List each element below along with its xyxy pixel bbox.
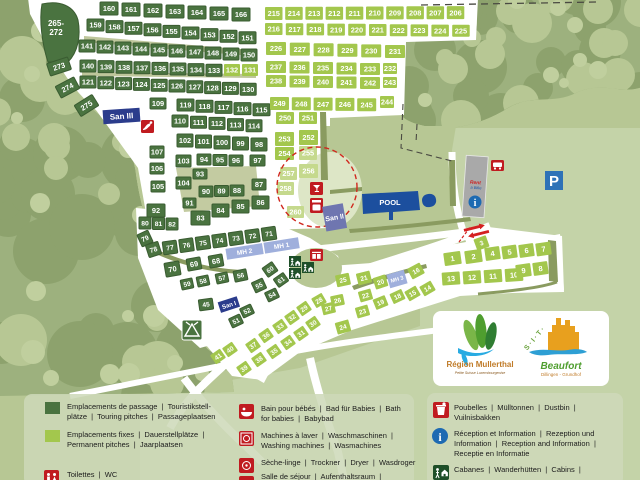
svg-text:101: 101 <box>197 137 209 146</box>
svg-text:119: 119 <box>180 101 192 110</box>
svg-text:72: 72 <box>248 233 257 241</box>
svg-text:124: 124 <box>135 80 148 89</box>
svg-text:45: 45 <box>202 301 211 309</box>
svg-text:92: 92 <box>152 206 160 215</box>
svg-text:260: 260 <box>289 208 301 217</box>
svg-text:220: 220 <box>351 25 363 34</box>
svg-text:89: 89 <box>217 187 225 196</box>
svg-text:129: 129 <box>224 84 236 93</box>
svg-text:for babies | Babybad: for babies | Babybad <box>261 414 334 423</box>
svg-text:229: 229 <box>341 46 353 55</box>
svg-text:243: 243 <box>384 78 396 87</box>
svg-text:Emplacements de passage | To: Emplacements de passage | Touristikstell… <box>67 402 211 411</box>
svg-text:238: 238 <box>270 77 282 86</box>
svg-text:218: 218 <box>309 25 321 34</box>
svg-text:136: 136 <box>154 64 166 73</box>
svg-text:Emplacements fixes | Dauerst: Emplacements fixes | Dauerstellplätze | <box>67 430 204 439</box>
svg-text:93: 93 <box>196 170 204 179</box>
svg-text:245: 245 <box>361 100 373 109</box>
svg-text:272: 272 <box>49 28 63 37</box>
svg-text:143: 143 <box>117 44 129 53</box>
svg-text:137: 137 <box>136 63 148 72</box>
svg-text:160: 160 <box>103 4 115 13</box>
svg-text:144: 144 <box>135 45 148 54</box>
svg-text:153: 153 <box>203 30 215 39</box>
svg-text:84: 84 <box>216 206 225 215</box>
svg-text:135: 135 <box>172 65 184 74</box>
svg-text:163: 163 <box>169 7 181 16</box>
svg-text:130: 130 <box>242 85 254 94</box>
svg-text:139: 139 <box>100 62 112 71</box>
svg-text:152: 152 <box>222 32 234 41</box>
svg-text:95: 95 <box>216 156 224 165</box>
svg-text:83: 83 <box>196 214 204 223</box>
svg-text:Région Mullerthal: Région Mullerthal <box>446 360 513 369</box>
svg-text:252: 252 <box>302 133 314 142</box>
svg-text:132: 132 <box>226 66 238 75</box>
svg-text:109: 109 <box>152 99 164 108</box>
svg-text:250: 250 <box>279 114 291 123</box>
svg-text:154: 154 <box>184 29 197 38</box>
svg-text:82: 82 <box>168 221 176 228</box>
svg-text:148: 148 <box>207 49 219 58</box>
svg-text:208: 208 <box>409 8 421 17</box>
svg-text:115: 115 <box>256 105 268 114</box>
svg-text:76: 76 <box>182 242 191 250</box>
svg-text:125: 125 <box>153 81 165 90</box>
svg-text:73: 73 <box>232 235 241 243</box>
svg-text:99: 99 <box>236 139 244 148</box>
svg-text:13: 13 <box>447 274 456 284</box>
svg-text:209: 209 <box>389 9 401 18</box>
svg-text:100: 100 <box>216 138 228 147</box>
svg-text:112: 112 <box>211 119 223 128</box>
svg-text:207: 207 <box>429 8 441 17</box>
svg-text:225: 225 <box>455 26 467 35</box>
svg-text:236: 236 <box>293 63 305 72</box>
svg-text:107: 107 <box>151 148 163 157</box>
svg-text:Permanent pitches | Jaarplaa: Permanent pitches | Jaarplaatsen <box>67 440 183 449</box>
svg-text:241: 241 <box>340 78 352 87</box>
svg-text:161: 161 <box>125 5 137 14</box>
svg-text:145: 145 <box>153 46 165 55</box>
svg-text:223: 223 <box>413 26 425 35</box>
svg-text:158: 158 <box>108 22 120 31</box>
svg-text:Dillingen - Grundhof: Dillingen - Grundhof <box>541 372 582 377</box>
svg-text:150: 150 <box>243 51 255 60</box>
svg-text:217: 217 <box>288 25 300 34</box>
svg-text:138: 138 <box>118 63 130 72</box>
svg-text:141: 141 <box>81 42 93 51</box>
svg-text:74: 74 <box>215 238 224 246</box>
svg-text:Poubelles | Mülltonnen | D: Poubelles | Mülltonnen | Dustbin | <box>454 403 576 412</box>
svg-text:222: 222 <box>392 26 404 35</box>
svg-text:219: 219 <box>330 25 342 34</box>
svg-text:117: 117 <box>218 103 230 112</box>
svg-text:87: 87 <box>255 180 263 189</box>
svg-text:103: 103 <box>177 157 189 166</box>
svg-text:Cabanes | Wanderhütten | C: Cabanes | Wanderhütten | Cabins | <box>454 465 581 474</box>
svg-text:80: 80 <box>141 220 149 227</box>
svg-text:151: 151 <box>241 33 253 42</box>
svg-text:147: 147 <box>189 48 201 57</box>
svg-text:Sèche-linge | Trockner | D: Sèche-linge | Trockner | Dryer | Wasdrog… <box>261 458 416 467</box>
svg-text:116: 116 <box>237 104 249 113</box>
svg-text:214: 214 <box>288 9 301 18</box>
svg-text:249: 249 <box>273 99 285 108</box>
svg-text:258: 258 <box>279 184 291 193</box>
svg-text:96: 96 <box>232 156 240 165</box>
svg-text:213: 213 <box>308 9 320 18</box>
svg-text:244: 244 <box>381 98 394 107</box>
svg-text:12: 12 <box>468 273 477 283</box>
svg-text:San III: San III <box>109 111 133 122</box>
svg-text:251: 251 <box>302 114 314 123</box>
svg-text:253: 253 <box>278 135 290 144</box>
svg-text:235: 235 <box>317 64 329 73</box>
svg-text:247: 247 <box>317 100 329 109</box>
svg-text:126: 126 <box>171 82 183 91</box>
svg-text:164: 164 <box>191 8 204 17</box>
svg-text:215: 215 <box>268 9 280 18</box>
svg-text:216: 216 <box>268 25 280 34</box>
svg-text:118: 118 <box>199 102 211 111</box>
svg-text:68: 68 <box>211 256 221 266</box>
svg-text:102: 102 <box>179 136 191 145</box>
svg-text:133: 133 <box>208 66 220 75</box>
svg-text:106: 106 <box>151 164 163 173</box>
svg-text:Beaufort: Beaufort <box>540 361 582 372</box>
svg-text:71: 71 <box>265 231 274 239</box>
svg-text:105: 105 <box>152 182 164 191</box>
svg-text:91: 91 <box>185 199 193 208</box>
svg-text:131: 131 <box>244 66 256 75</box>
svg-text:P: P <box>549 173 559 190</box>
svg-text:228: 228 <box>317 45 329 54</box>
svg-text:81: 81 <box>155 221 163 228</box>
svg-text:98: 98 <box>255 140 263 149</box>
svg-text:239: 239 <box>293 77 305 86</box>
svg-text:113: 113 <box>230 120 242 129</box>
svg-text:POOL: POOL <box>379 198 401 207</box>
svg-text:Receptie en Informatie: Receptie en Informatie <box>454 449 529 458</box>
svg-text:240: 240 <box>317 78 329 87</box>
svg-text:162: 162 <box>147 6 159 15</box>
svg-text:123: 123 <box>117 79 129 88</box>
svg-text:94: 94 <box>200 155 209 164</box>
svg-text:233: 233 <box>364 65 376 74</box>
svg-text:a Bike: a Bike <box>470 185 482 191</box>
svg-text:128: 128 <box>206 83 218 92</box>
svg-text:77: 77 <box>166 244 175 252</box>
svg-text:75: 75 <box>199 240 208 248</box>
svg-text:227: 227 <box>294 45 306 54</box>
svg-text:86: 86 <box>256 198 264 207</box>
svg-text:206: 206 <box>449 8 461 17</box>
svg-text:Petite Suisse Luxembourgeoise: Petite Suisse Luxembourgeoise <box>455 371 506 375</box>
svg-text:232: 232 <box>384 64 396 73</box>
svg-text:157: 157 <box>127 24 139 33</box>
svg-text:i: i <box>474 198 477 209</box>
svg-text:70: 70 <box>168 264 178 274</box>
svg-text:Machines à laver | Waschmasc: Machines à laver | Waschmaschinen | <box>261 431 393 440</box>
svg-text:140: 140 <box>82 62 94 71</box>
svg-text:212: 212 <box>328 9 340 18</box>
svg-text:149: 149 <box>225 50 237 59</box>
svg-text:156: 156 <box>146 25 158 34</box>
svg-text:Vuilnisbakken: Vuilnisbakken <box>454 413 500 422</box>
svg-text:265-: 265- <box>48 19 64 28</box>
svg-text:114: 114 <box>248 121 261 130</box>
svg-text:Washing machines | Wasmachin: Washing machines | Wasmachines <box>261 441 381 450</box>
svg-text:159: 159 <box>89 21 101 30</box>
svg-text:257: 257 <box>282 169 294 178</box>
svg-text:165: 165 <box>213 9 225 18</box>
svg-text:242: 242 <box>364 79 376 88</box>
svg-text:85: 85 <box>236 202 244 211</box>
svg-text:230: 230 <box>365 47 377 56</box>
svg-text:90: 90 <box>202 187 210 196</box>
svg-text:121: 121 <box>82 78 94 87</box>
svg-text:Toilettes | WC: Toilettes | WC <box>67 470 118 479</box>
svg-text:Bain pour bébés | Bad für Ba: Bain pour bébés | Bad für Babies | Bath <box>261 404 401 413</box>
svg-text:plätze | Touring pitches |: plätze | Touring pitches | Passageplaats… <box>67 412 215 421</box>
svg-text:221: 221 <box>372 26 384 35</box>
svg-text:166: 166 <box>235 10 247 19</box>
svg-text:146: 146 <box>171 47 183 56</box>
svg-text:104: 104 <box>177 179 190 188</box>
svg-text:256: 256 <box>302 167 314 176</box>
svg-text:254: 254 <box>278 149 291 158</box>
svg-text:110: 110 <box>174 117 186 126</box>
svg-text:234: 234 <box>340 64 353 73</box>
svg-text:69: 69 <box>189 259 199 269</box>
svg-text:211: 211 <box>349 9 361 18</box>
svg-text:155: 155 <box>165 27 177 36</box>
svg-text:231: 231 <box>389 47 401 56</box>
svg-text:111: 111 <box>193 118 205 127</box>
svg-text:226: 226 <box>270 44 282 53</box>
svg-text:97: 97 <box>253 156 261 165</box>
svg-text:122: 122 <box>100 78 112 87</box>
svg-text:11: 11 <box>489 272 497 282</box>
svg-text:88: 88 <box>233 186 241 195</box>
svg-text:Salle de séjour | Aufenthalt: Salle de séjour | Aufenthaltsraum | <box>261 472 381 480</box>
svg-text:246: 246 <box>339 100 351 109</box>
svg-text:134: 134 <box>190 65 203 74</box>
svg-text:248: 248 <box>295 99 307 108</box>
svg-text:210: 210 <box>369 9 381 18</box>
svg-text:127: 127 <box>189 82 201 91</box>
svg-text:237: 237 <box>270 63 282 72</box>
svg-text:Réception et Information | R: Réception et Information | Rezeption und <box>454 429 594 438</box>
svg-text:142: 142 <box>99 43 111 52</box>
svg-text:224: 224 <box>434 26 447 35</box>
svg-text:Information | Reception and: Information | Reception and Information … <box>454 439 596 448</box>
